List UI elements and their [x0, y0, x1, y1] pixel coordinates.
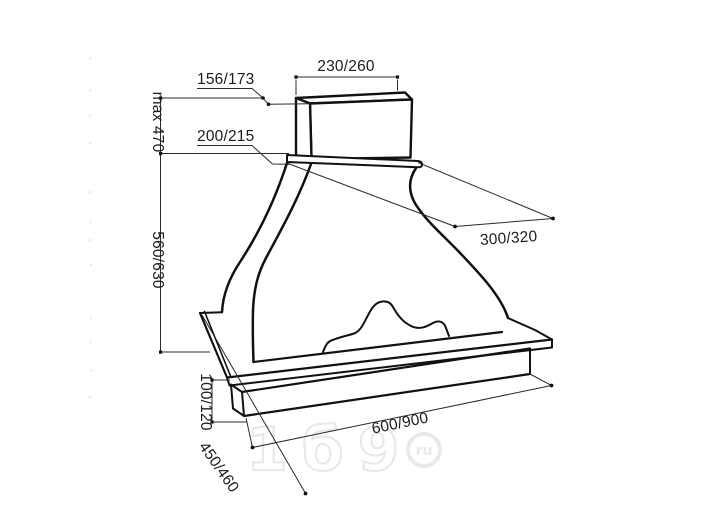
label-230-260: 230/260: [317, 58, 375, 75]
label-450-460: 450/460: [195, 439, 242, 496]
dot-end: [304, 492, 308, 496]
shelf-left-edge-outer: [200, 313, 227, 378]
leader-156-173: [197, 89, 310, 105]
dimension-top-width: 230/260: [294, 58, 399, 95]
dim-line-300-320: [455, 219, 553, 227]
dot-2: [267, 103, 271, 107]
dimension-base-height: 100/120: [197, 373, 247, 431]
scan-artifact-dots: [89, 57, 93, 399]
dimension-collar-depth: 200/215: [197, 128, 290, 164]
leader-left: [288, 164, 455, 227]
shelf-left-edge-inner: [205, 312, 231, 377]
chimney-left-face: [296, 98, 312, 159]
tick-right: [396, 75, 399, 78]
dot-1: [261, 96, 265, 100]
canopy-wavy-crest: [323, 301, 449, 352]
label-max-470: max 470: [149, 92, 166, 153]
tick-left: [294, 75, 297, 78]
canopy-left-inner-curve: [253, 164, 311, 362]
dot-left: [453, 225, 457, 229]
label-200-215: 200/215: [197, 128, 254, 145]
leader-200-215: [197, 146, 290, 165]
label-100-120: 100/120: [197, 373, 214, 431]
dot-right: [551, 217, 555, 221]
dimension-duct-depth: 300/320: [288, 163, 555, 249]
label-560-630: 560/630: [149, 231, 166, 289]
range-hood-technical-drawing: 1б9 ru: [0, 0, 702, 523]
chimney-front-face: [310, 100, 412, 160]
tick-middle: [159, 152, 162, 155]
label-300-320: 300/320: [479, 228, 538, 249]
ext-right: [530, 374, 552, 386]
shelf-back-edge-right: [508, 318, 552, 340]
band-bottom-edge: [244, 374, 530, 416]
label-156-173: 156/173: [197, 71, 254, 88]
band-left-end-face: [231, 385, 244, 417]
tick-bottom: [159, 351, 162, 354]
leader-right: [418, 163, 553, 219]
dot-right: [550, 384, 554, 388]
drawing-canvas: 1б9 ru: [0, 0, 702, 523]
dimension-top-depth: 156/173: [197, 71, 310, 106]
watermark-badge-text: ru: [416, 443, 433, 459]
dot-left: [251, 446, 255, 450]
shelf-back-edge-left: [200, 312, 222, 313]
